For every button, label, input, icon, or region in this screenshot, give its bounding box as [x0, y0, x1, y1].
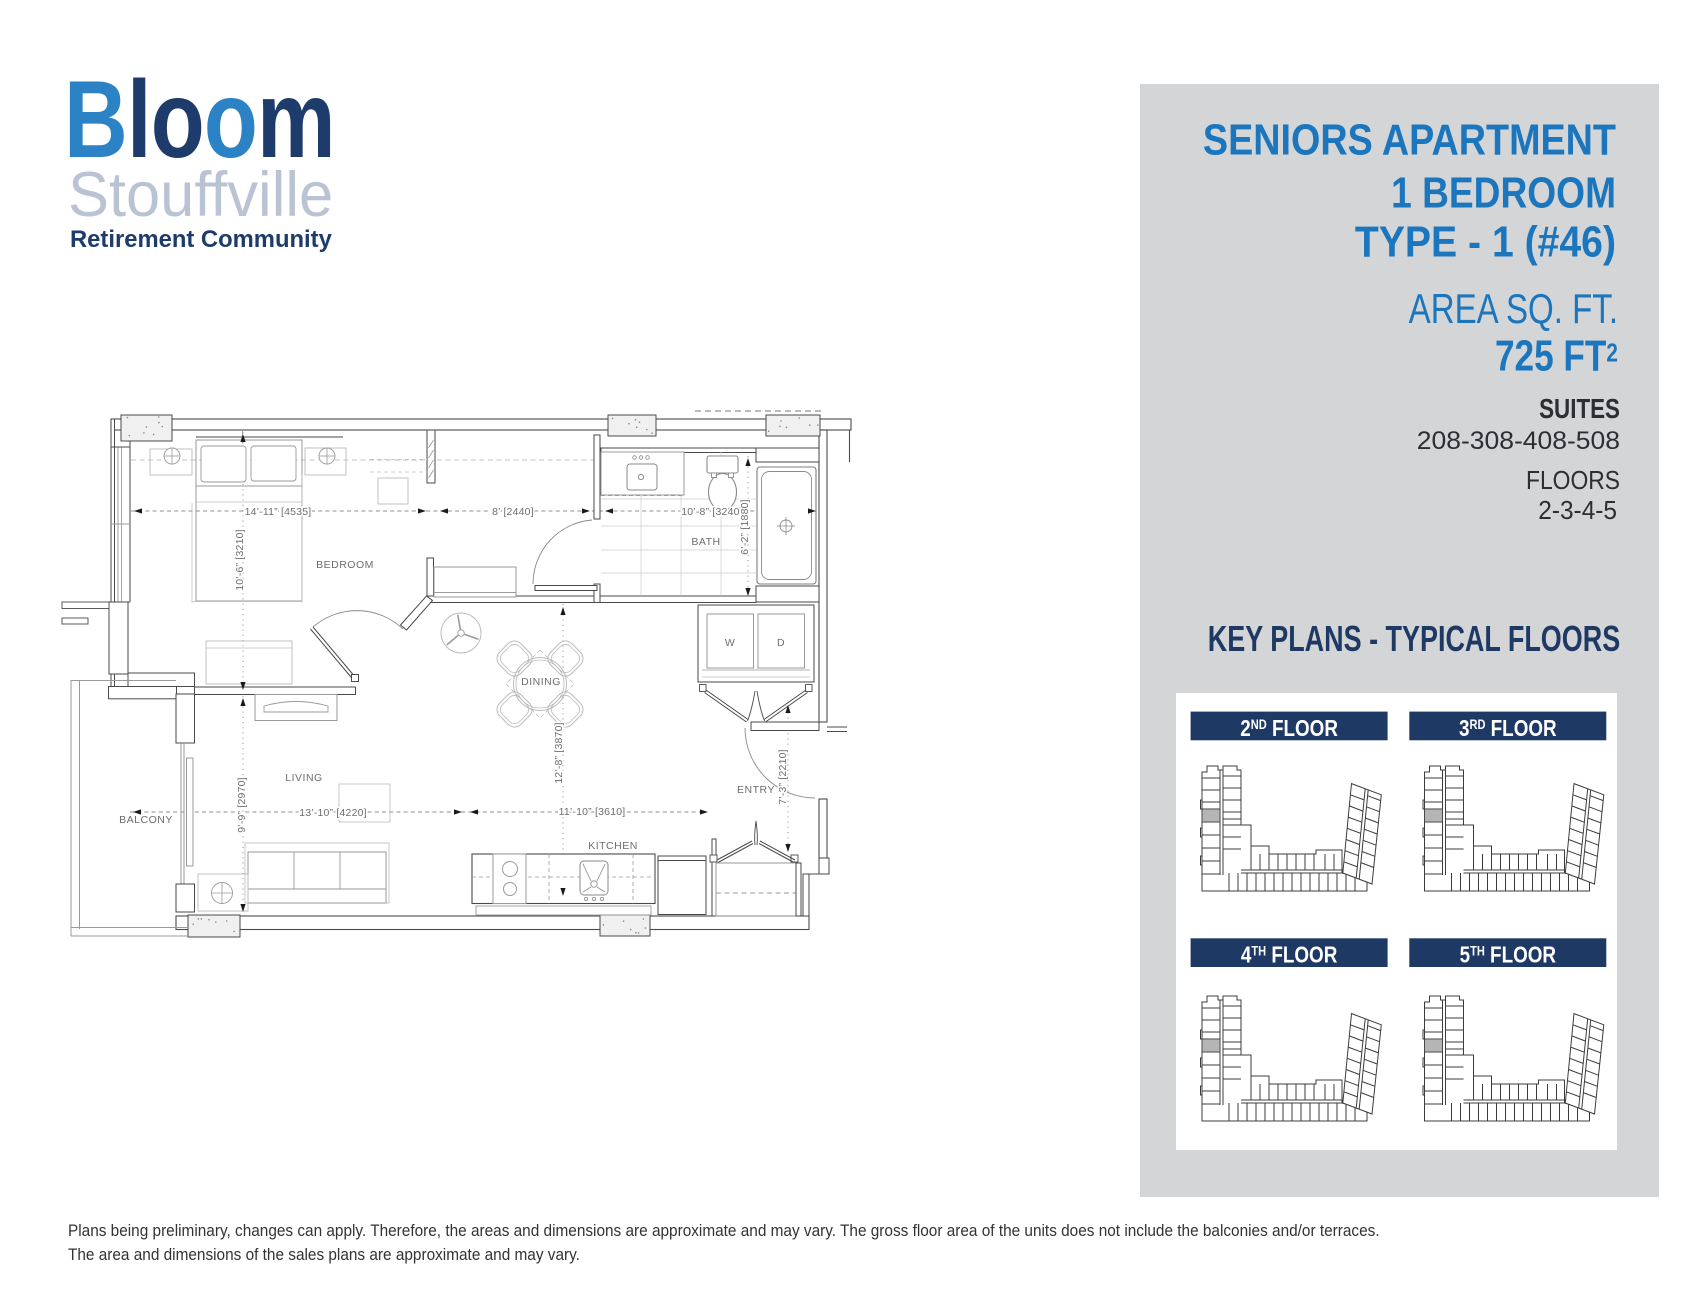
svg-text:SUITES: SUITES	[1539, 394, 1620, 425]
svg-text:BEDROOM: BEDROOM	[316, 559, 374, 571]
svg-text:10’-6” [3210]: 10’-6” [3210]	[234, 529, 246, 591]
svg-text:BALCONY: BALCONY	[119, 814, 173, 826]
svg-text:W: W	[725, 637, 735, 649]
svg-text:Stouffville: Stouffville	[68, 160, 333, 230]
svg-text:AREA SQ. FT.: AREA SQ. FT.	[1409, 286, 1618, 333]
svg-text:1 BEDROOM: 1 BEDROOM	[1391, 168, 1616, 218]
svg-text:12’-8” [3870]: 12’-8” [3870]	[553, 722, 565, 784]
svg-text:10’-8” [3240]: 10’-8” [3240]	[681, 506, 743, 518]
svg-text:725 FT2: 725 FT2	[1495, 332, 1618, 381]
svg-text:TYPE - 1 (#46): TYPE - 1 (#46)	[1355, 216, 1616, 266]
svg-text:2-3-4-5: 2-3-4-5	[1538, 496, 1617, 525]
svg-text:9’-9” [2970]: 9’-9” [2970]	[236, 777, 248, 833]
svg-text:11’-10” [3610]: 11’-10” [3610]	[559, 806, 626, 818]
svg-text:Retirement Community: Retirement Community	[70, 226, 333, 253]
svg-text:208-308-408-508: 208-308-408-508	[1417, 428, 1620, 455]
svg-text:6’-2” [1880]: 6’-2” [1880]	[739, 499, 751, 555]
svg-text:The area and dimensions of the: The area and dimensions of the sales pla…	[68, 1247, 580, 1265]
svg-text:7’-3” [2210]: 7’-3” [2210]	[777, 749, 789, 805]
svg-text:BATH: BATH	[691, 536, 720, 548]
svg-text:ENTRY: ENTRY	[737, 784, 775, 796]
svg-text:LIVING: LIVING	[285, 772, 322, 784]
svg-text:13’-10” [4220]: 13’-10” [4220]	[299, 807, 367, 819]
svg-text:Plans being preliminary, chang: Plans being preliminary, changes can app…	[68, 1223, 1380, 1241]
svg-text:8’ [2440]: 8’ [2440]	[492, 506, 534, 518]
svg-text:KEY PLANS - TYPICAL FLOORS: KEY PLANS - TYPICAL FLOORS	[1208, 618, 1620, 659]
svg-text:SENIORS APARTMENT: SENIORS APARTMENT	[1203, 115, 1616, 164]
svg-text:FLOORS: FLOORS	[1526, 467, 1620, 496]
svg-text:D: D	[777, 637, 785, 649]
svg-text:KITCHEN: KITCHEN	[588, 840, 638, 852]
svg-text:14’-11” [4535]: 14’-11” [4535]	[245, 506, 312, 518]
svg-text:DINING: DINING	[521, 676, 561, 688]
